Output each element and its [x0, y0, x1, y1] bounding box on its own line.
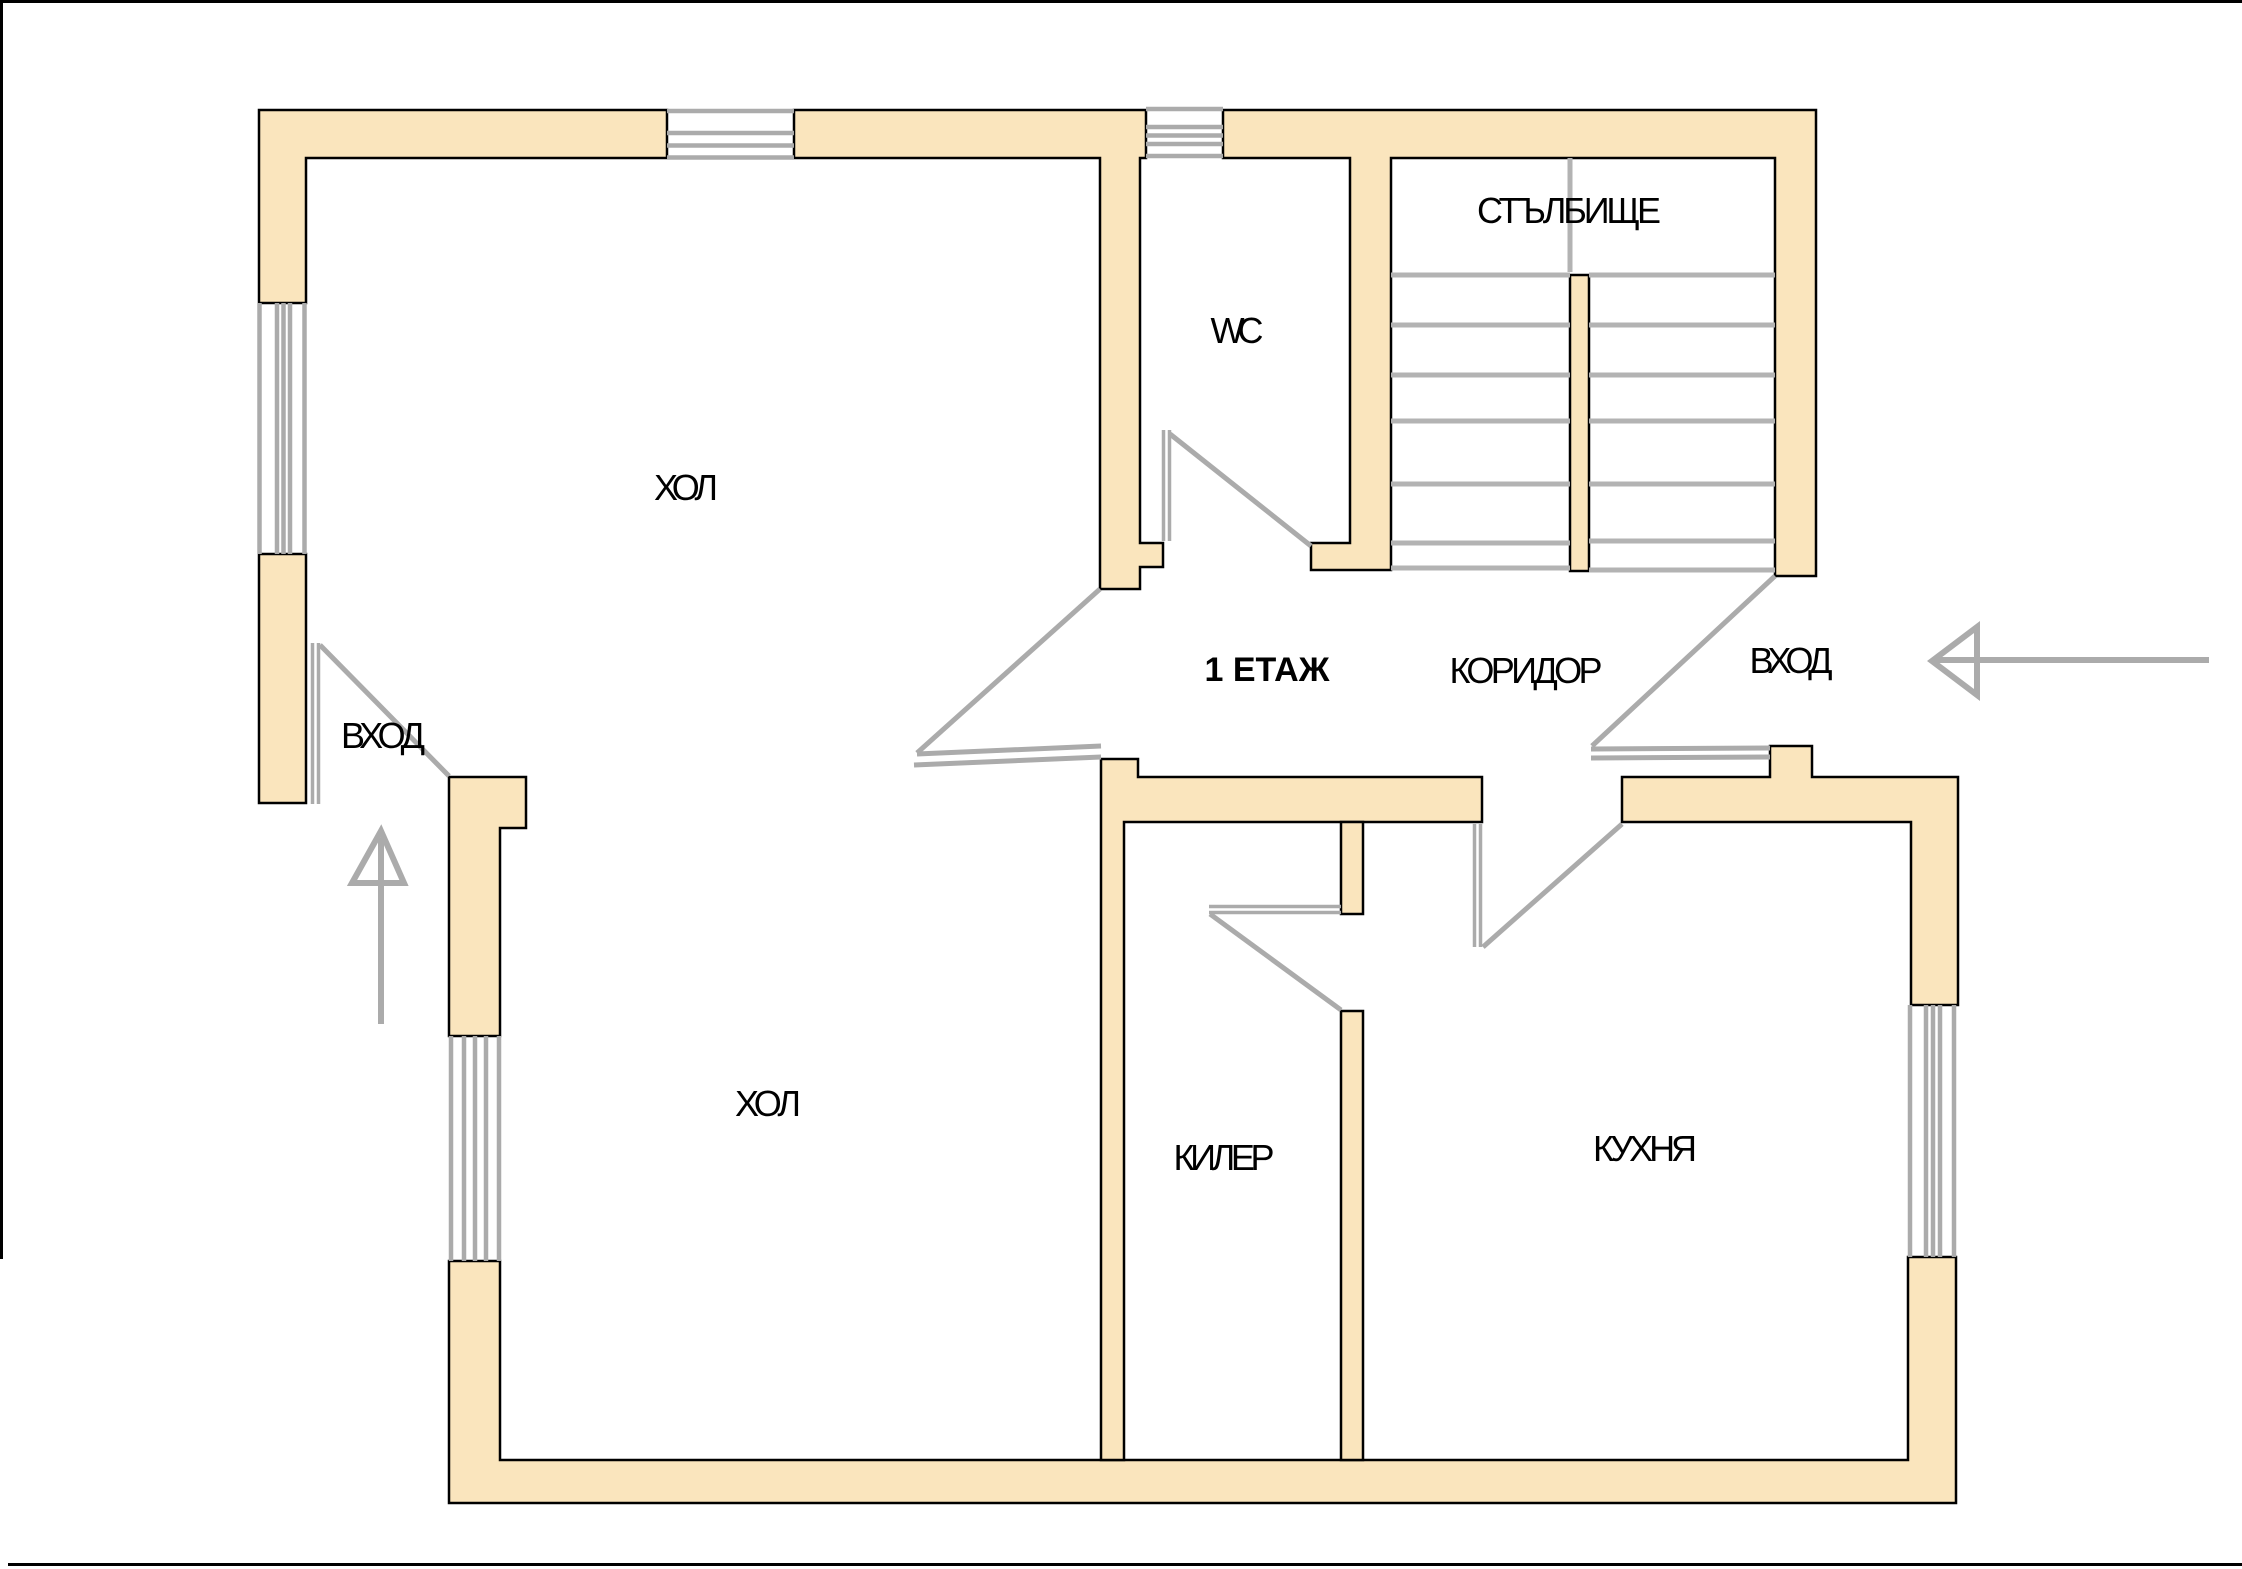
svg-text:КУХНЯ: КУХНЯ [1593, 1128, 1697, 1169]
svg-text:ХОЛ: ХОЛ [654, 467, 718, 508]
svg-text:1 ЕТАЖ: 1 ЕТАЖ [1205, 651, 1330, 689]
svg-text:КИЛЕР: КИЛЕР [1174, 1137, 1275, 1178]
svg-text:ХОЛ: ХОЛ [735, 1083, 801, 1124]
svg-text:WC: WC [1211, 310, 1264, 351]
svg-text:СТЪЛБИЩЕ: СТЪЛБИЩЕ [1477, 190, 1661, 231]
svg-text:КОРИДОР: КОРИДОР [1450, 650, 1603, 691]
svg-text:ВХОД: ВХОД [1750, 640, 1833, 681]
svg-text:ВХОД: ВХОД [341, 715, 425, 756]
